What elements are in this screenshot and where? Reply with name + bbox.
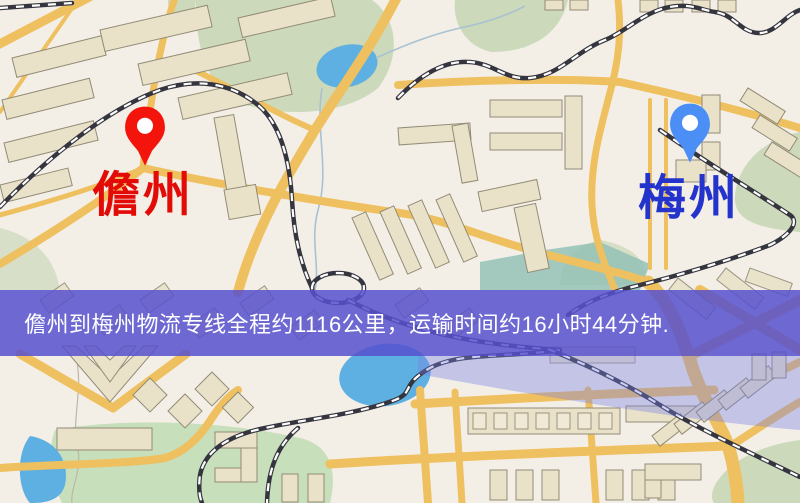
destination-city-label: 梅州 bbox=[638, 175, 740, 223]
map-image bbox=[0, 0, 800, 503]
route-info-banner: 儋州到梅州物流专线全程约1116公里，运输时间约16小时44分钟. bbox=[0, 290, 800, 356]
destination-pin-icon bbox=[667, 102, 713, 165]
map-view: 儋州 梅州 儋州到梅州物流专线全程约1116公里，运输时间约16小时44分钟. bbox=[0, 0, 800, 503]
route-info-text: 儋州到梅州物流专线全程约1116公里，运输时间约16小时44分钟. bbox=[0, 307, 669, 339]
origin-pin-icon bbox=[122, 105, 168, 168]
origin-city-label: 儋州 bbox=[92, 172, 194, 220]
